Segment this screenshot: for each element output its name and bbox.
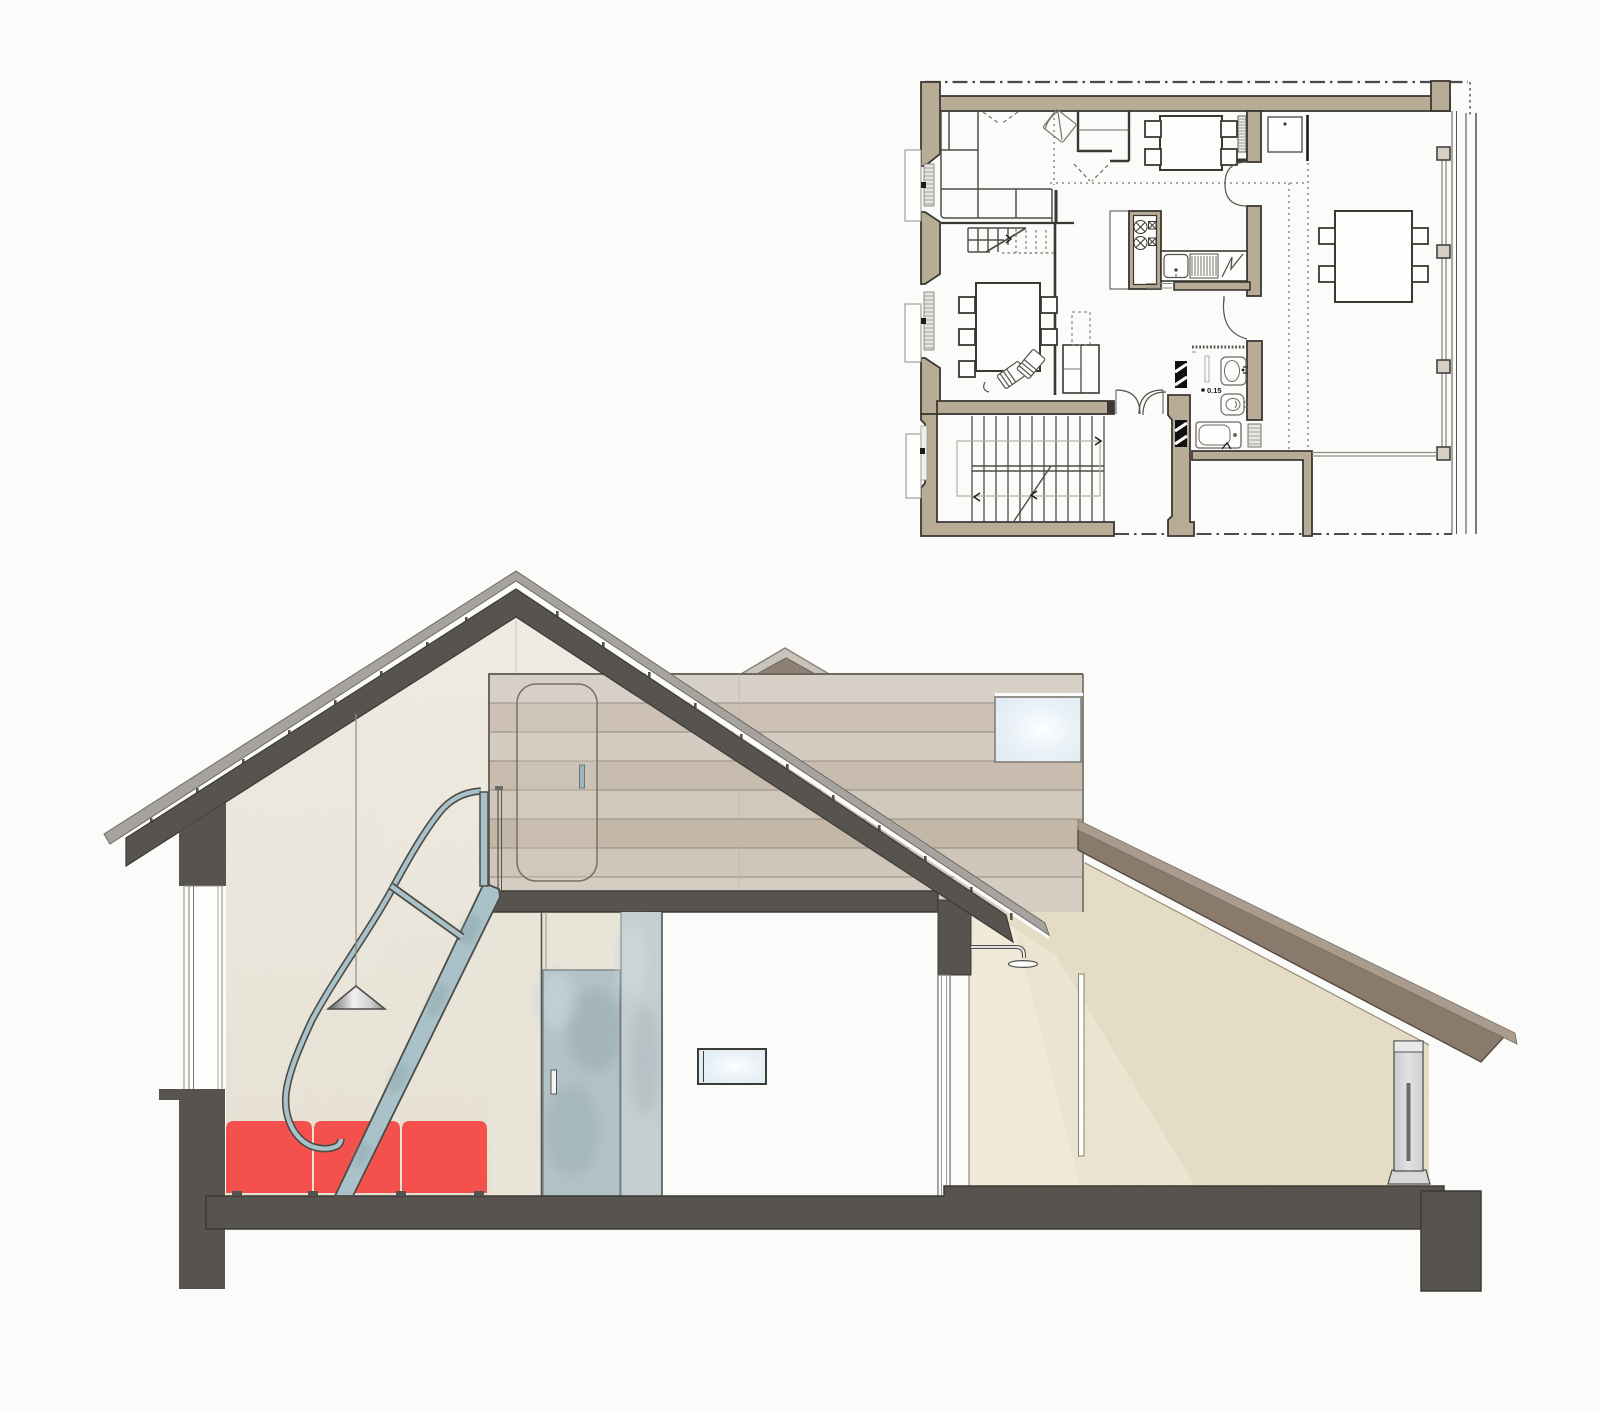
svg-text:0.15: 0.15 <box>1207 386 1222 395</box>
